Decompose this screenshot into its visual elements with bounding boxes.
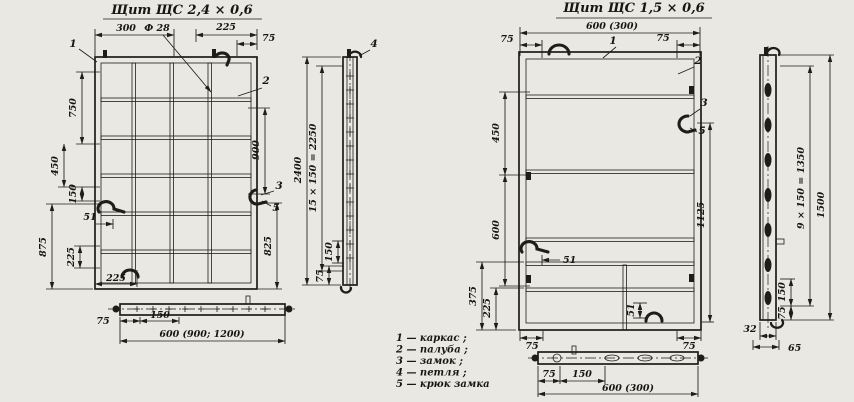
- bolt-plate: [526, 275, 531, 283]
- dim-600-view: 600 (300): [602, 383, 654, 394]
- slot: [765, 83, 772, 97]
- callout-2: 2: [261, 75, 269, 87]
- dim-150-bottom: 150: [150, 310, 170, 321]
- callout-5: 5: [698, 125, 705, 137]
- dim-15x150: 15 × 150 = 2250: [308, 123, 319, 212]
- dim-300: 300: [116, 23, 136, 34]
- dim-51-mid: 51: [563, 255, 576, 266]
- drawing-canvas: Щит ЩС 2,4 × 0,6: [0, 0, 854, 402]
- dim-75-bottom: 75: [96, 316, 110, 327]
- dim-75-top: 75: [262, 33, 276, 44]
- legend-item-2: 2 — палуба ;: [395, 345, 468, 356]
- legend-item-5: 5 — крюк замка: [396, 379, 490, 390]
- dim-450: 450: [491, 123, 502, 143]
- dim-75-side: 75: [777, 306, 788, 320]
- dim-225-top: 225: [215, 22, 236, 33]
- dim-600-top: 600 (300): [586, 21, 638, 32]
- dim-600-bottom: 600 (900; 1200): [159, 329, 244, 340]
- dim-9x150: 9 × 150 = 1350: [796, 147, 807, 229]
- dim-1125: 1125: [696, 201, 707, 228]
- callout-2: 2: [693, 55, 701, 67]
- dim-150-side: 150: [324, 242, 335, 262]
- bolt-plate: [526, 172, 531, 180]
- callout-1: 1: [69, 38, 76, 50]
- dim-375: 375: [468, 286, 479, 306]
- left-title: Щит ЩС 2,4 × 0,6: [110, 3, 252, 18]
- end-pin: [113, 306, 120, 313]
- slot: [765, 118, 772, 132]
- dim-225: 225: [482, 298, 493, 319]
- dim-2400: 2400: [293, 156, 304, 184]
- slot: [765, 258, 772, 272]
- bolt-plate: [689, 86, 694, 94]
- dim-f28: Ф 28: [144, 23, 170, 34]
- legend-item-1: 1 — каркас ;: [396, 333, 467, 344]
- dim-1500: 1500: [816, 191, 827, 218]
- dim-600-left: 600: [491, 220, 502, 240]
- dim-75-bottom-left: 75: [525, 341, 539, 352]
- callout-4: 4: [370, 38, 377, 50]
- end-pin: [286, 306, 293, 313]
- legend-item-3: 3 — замок ;: [396, 356, 463, 367]
- dim-450: 450: [50, 156, 61, 176]
- dim-65: 65: [788, 343, 802, 354]
- blueprint-sheet: Щит ЩС 2,4 × 0,6: [0, 0, 854, 402]
- bolt-plate: [689, 274, 694, 282]
- end-pin: [698, 355, 705, 362]
- dim-75-top-left: 75: [500, 34, 514, 45]
- dim-51-bottom: 51: [626, 303, 637, 316]
- dim-225-left: 225: [66, 247, 77, 268]
- dim-150-side: 150: [777, 282, 788, 302]
- dim-150-view: 150: [572, 369, 592, 380]
- dim-75-side: 75: [315, 269, 326, 283]
- dim-32: 32: [743, 324, 757, 335]
- callout-1: 1: [609, 35, 616, 47]
- dim-825: 825: [263, 236, 274, 256]
- dim-75-view: 75: [542, 369, 556, 380]
- right-title: Щит ЩС 1,5 × 0,6: [562, 1, 704, 16]
- dim-75-top-right: 75: [656, 33, 670, 44]
- dim-150: 150: [68, 184, 79, 204]
- slot: [765, 153, 772, 167]
- dim-875: 875: [38, 237, 49, 257]
- dim-51: 51: [83, 212, 96, 223]
- top-pin: [103, 50, 107, 58]
- callout-5: 5: [272, 202, 279, 214]
- slot: [765, 223, 772, 237]
- dim-75-bottom-right: 75: [682, 341, 696, 352]
- slot: [765, 291, 772, 305]
- slot: [765, 188, 772, 202]
- dim-900: 900: [251, 140, 262, 160]
- callout-3: 3: [700, 97, 707, 109]
- legend-item-4: 4 — петля ;: [396, 368, 467, 379]
- end-pin: [532, 355, 539, 362]
- callout-3: 3: [275, 180, 282, 192]
- dim-750: 750: [68, 98, 79, 118]
- dim-225-bottom: 225: [105, 273, 126, 284]
